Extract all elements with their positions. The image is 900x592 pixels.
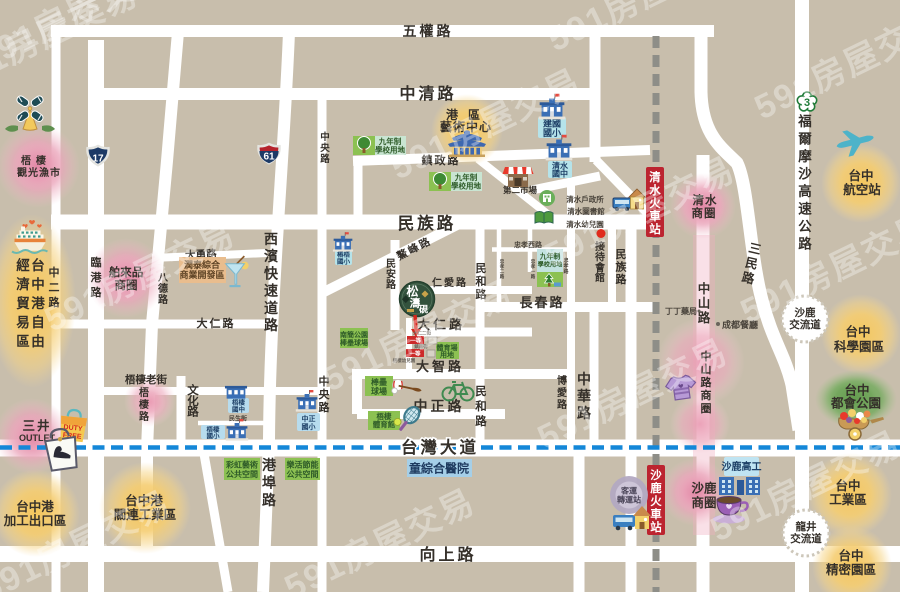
svg-text:台中: 台中: [848, 168, 873, 183]
svg-text:61: 61: [263, 152, 275, 163]
svg-text:民生街: 民生街: [229, 415, 247, 423]
svg-text:學校用地: 學校用地: [451, 181, 481, 191]
svg-text:民和路: 民和路: [475, 385, 487, 428]
svg-text:球場: 球場: [371, 386, 387, 396]
svg-text:忠孝一路: 忠孝一路: [530, 258, 536, 280]
svg-text:國小: 國小: [543, 127, 561, 138]
svg-text:17: 17: [92, 154, 104, 165]
svg-text:梧棲: 梧棲: [232, 398, 246, 407]
svg-text:精密園區: 精密園區: [826, 562, 877, 577]
svg-text:國小: 國小: [337, 257, 351, 266]
svg-text:仁愛路: 仁愛路: [432, 276, 468, 289]
svg-text:丁丁藥局: 丁丁藥局: [665, 306, 697, 316]
svg-text:觀光漁市: 觀光漁市: [17, 166, 61, 179]
svg-text:向上路: 向上路: [419, 545, 476, 564]
svg-text:港埠路: 港埠路: [262, 457, 277, 508]
svg-text:公共空間: 公共空間: [226, 469, 258, 479]
svg-text:沙鹿高工: 沙鹿高工: [722, 460, 762, 473]
svg-text:工業區: 工業區: [829, 492, 867, 507]
svg-text:民族路: 民族路: [398, 213, 457, 233]
svg-text:公共空間: 公共空間: [287, 469, 319, 479]
svg-text:用地: 用地: [440, 350, 454, 359]
svg-text:梧棲路: 梧棲路: [139, 386, 150, 423]
svg-text:商圈: 商圈: [692, 206, 717, 220]
svg-text:國小: 國小: [302, 422, 316, 431]
svg-text:沙鹿火車站: 沙鹿火車站: [650, 469, 662, 534]
svg-text:沙鹿: 沙鹿: [691, 481, 717, 496]
svg-text:體育館: 體育館: [373, 419, 396, 429]
svg-text:台中: 台中: [845, 324, 870, 339]
svg-text:梧棲: 梧棲: [21, 154, 51, 167]
svg-text:三井: 三井: [22, 418, 51, 433]
svg-text:松: 松: [406, 284, 418, 299]
svg-text:客運: 客運: [620, 486, 637, 496]
svg-text:商圈: 商圈: [691, 495, 716, 510]
svg-text:交流道: 交流道: [790, 532, 822, 545]
svg-text:中正路: 中正路: [414, 398, 465, 414]
svg-text:大仁路: 大仁路: [197, 316, 236, 330]
svg-text:五權路: 五權路: [403, 23, 454, 39]
svg-text:台中: 台中: [838, 548, 863, 563]
svg-text:都會公園: 都會公園: [830, 396, 881, 411]
svg-text:西濱快速道路: 西濱快速道路: [264, 231, 279, 333]
svg-text:九年制: 九年制: [378, 136, 402, 146]
svg-text:加工出口區: 加工出口區: [3, 513, 67, 528]
svg-text:轉運站: 轉運站: [617, 495, 641, 505]
svg-text:文化路: 文化路: [187, 383, 199, 419]
svg-text:民安路: 民安路: [386, 258, 397, 291]
svg-text:民族路: 民族路: [616, 248, 628, 286]
svg-text:長春路: 長春路: [519, 295, 564, 310]
svg-text:國中: 國中: [232, 405, 245, 414]
svg-text:台灣大道: 台灣大道: [401, 437, 479, 457]
svg-text:科學園區: 科學園區: [834, 339, 885, 354]
svg-text:大智路: 大智路: [416, 359, 464, 374]
svg-text:國小: 國小: [207, 431, 221, 440]
svg-text:航空站: 航空站: [843, 182, 881, 197]
svg-text:中央路: 中央路: [320, 131, 330, 165]
svg-text:中清路: 中清路: [399, 84, 456, 103]
svg-text:交流道: 交流道: [789, 318, 821, 331]
svg-text:彩虹藝術: 彩虹藝術: [225, 460, 258, 470]
svg-text:中正: 中正: [302, 414, 316, 423]
svg-text:九年制: 九年制: [454, 172, 478, 182]
svg-text:梧棲老街: 梧棲老街: [125, 373, 167, 386]
svg-text:台中港: 台中港: [16, 499, 54, 514]
svg-text:南簡公園: 南簡公園: [340, 330, 368, 339]
svg-text:清水戶政所: 清水戶政所: [566, 194, 604, 204]
svg-text:經濟貿易區: 經濟貿易區: [16, 257, 30, 349]
svg-text:樂活節能: 樂活節能: [286, 460, 319, 470]
svg-text:童綜合醫院: 童綜合醫院: [409, 461, 469, 476]
svg-text:龍井: 龍井: [796, 520, 817, 533]
svg-text:國中: 國中: [552, 169, 568, 179]
svg-text:中山路: 中山路: [698, 281, 711, 325]
svg-text:台中: 台中: [844, 383, 869, 398]
